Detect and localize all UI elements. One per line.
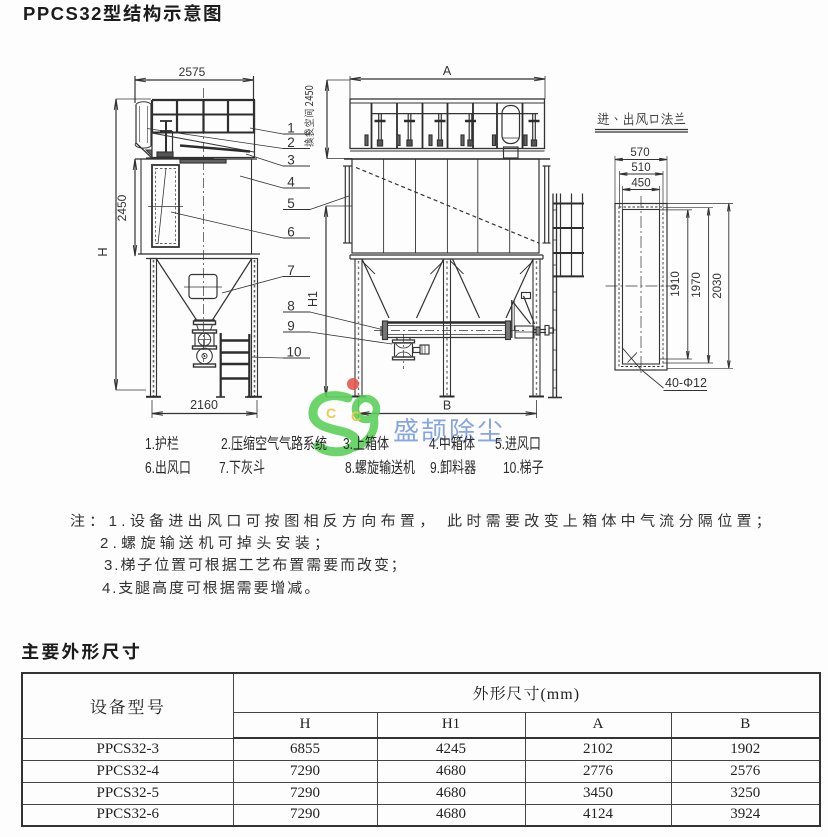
svg-text:H1: H1 (306, 291, 320, 307)
svg-text:1970: 1970 (691, 272, 703, 298)
svg-text:450: 450 (631, 178, 650, 190)
svg-text:7: 7 (287, 263, 295, 278)
svg-text:10: 10 (286, 345, 301, 360)
svg-text:2450: 2450 (115, 194, 129, 221)
svg-text:9: 9 (287, 319, 295, 334)
svg-text:6: 6 (287, 225, 295, 240)
svg-text:4: 4 (287, 175, 295, 190)
svg-text:H: H (95, 247, 110, 256)
svg-text:570: 570 (630, 147, 649, 159)
svg-text:1910: 1910 (670, 271, 682, 297)
svg-text:1: 1 (287, 121, 295, 136)
svg-text:3: 3 (287, 153, 295, 168)
svg-text:2: 2 (287, 135, 295, 150)
svg-text:5: 5 (287, 196, 295, 211)
svg-text:换袋空间 2450: 换袋空间 2450 (303, 85, 317, 147)
svg-text:C: C (351, 408, 361, 424)
svg-text:C: C (326, 405, 336, 421)
svg-text:8: 8 (287, 299, 295, 314)
svg-text:进、出风口法兰: 进、出风口法兰 (597, 110, 686, 129)
svg-text:2160: 2160 (190, 398, 218, 412)
svg-text:2575: 2575 (179, 65, 206, 79)
svg-text:A: A (443, 64, 452, 78)
svg-text:510: 510 (631, 162, 650, 174)
svg-text:2030: 2030 (712, 273, 724, 299)
svg-text:40-Φ12: 40-Φ12 (665, 376, 707, 390)
